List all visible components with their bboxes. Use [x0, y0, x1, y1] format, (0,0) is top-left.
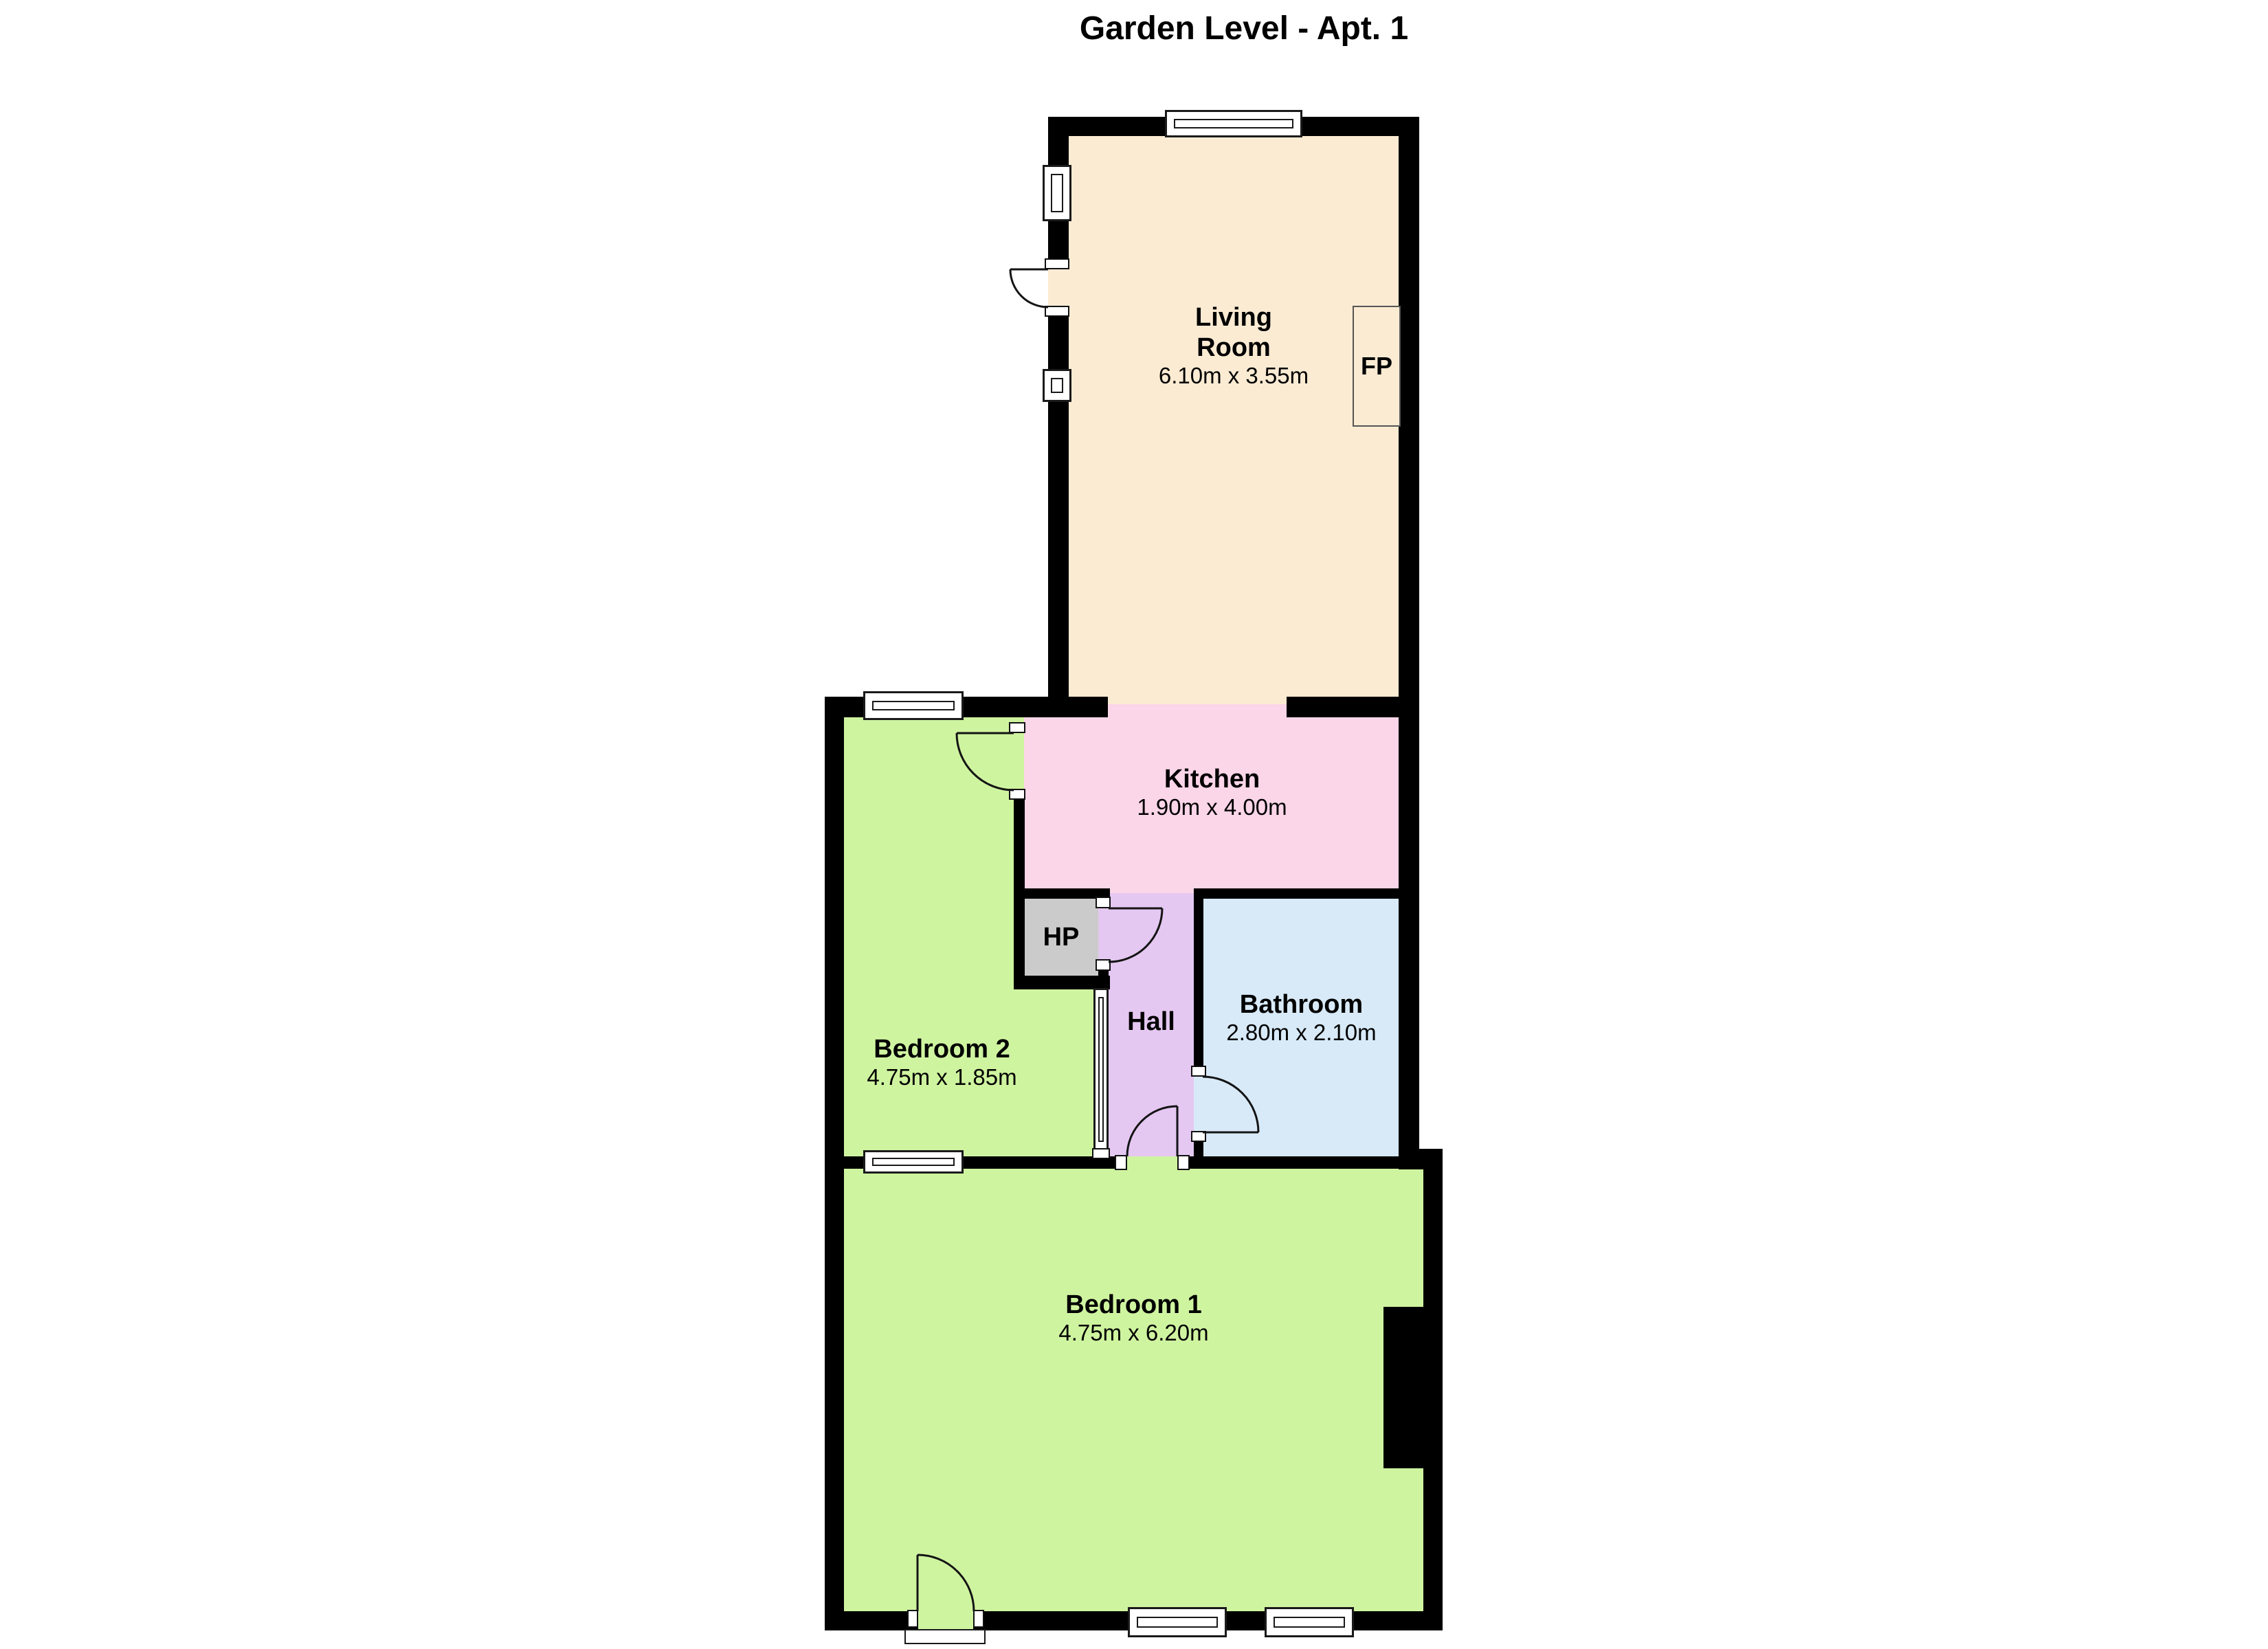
room-dims: 4.75m x 6.20m	[844, 1320, 1423, 1346]
door-arc-hall-bedroom1	[1127, 1106, 1177, 1156]
room-name: Living	[1069, 302, 1399, 333]
page-title: Garden Level - Apt. 1	[900, 10, 1588, 47]
door-arc-bedroom1-entrance	[918, 1555, 974, 1611]
bedroom-1-label: Bedroom 1 4.75m x 6.20m	[844, 1290, 1423, 1346]
door-swings	[0, 0, 2268, 1649]
room-dims: 6.10m x 3.55m	[1069, 363, 1399, 389]
room-name: Bathroom	[1203, 989, 1400, 1020]
room-name: Kitchen	[1024, 764, 1400, 794]
room-name: Bedroom 1	[844, 1290, 1423, 1320]
room-dims: 1.90m x 4.00m	[1024, 794, 1400, 820]
bedroom-2-label: Bedroom 2 4.75m x 1.85m	[844, 1034, 1040, 1090]
kitchen-label: Kitchen 1.90m x 4.00m	[1024, 764, 1400, 820]
room-name: Hall	[1103, 1007, 1199, 1037]
bathroom-label: Bathroom 2.80m x 2.10m	[1203, 989, 1400, 1046]
room-dims: 4.75m x 1.85m	[844, 1064, 1040, 1090]
hall-label: Hall	[1103, 1007, 1199, 1037]
room-name: HP	[1019, 922, 1103, 952]
room-name: Bedroom 2	[844, 1034, 1040, 1064]
door-arc-living-entrance	[1010, 269, 1048, 307]
door-arc-bedroom2	[957, 733, 1014, 790]
hp-label: HP	[1019, 922, 1103, 952]
room-dims: 2.80m x 2.10m	[1203, 1020, 1400, 1046]
living-room-label: Living Room 6.10m x 3.55m	[1069, 302, 1399, 389]
door-arc-bathroom	[1203, 1077, 1258, 1132]
floor-plan: FP Garden Level - Apt. 1 Living Room 6.1…	[0, 0, 2268, 1649]
door-arc-hp	[1109, 908, 1162, 962]
room-name: Room	[1069, 333, 1399, 363]
